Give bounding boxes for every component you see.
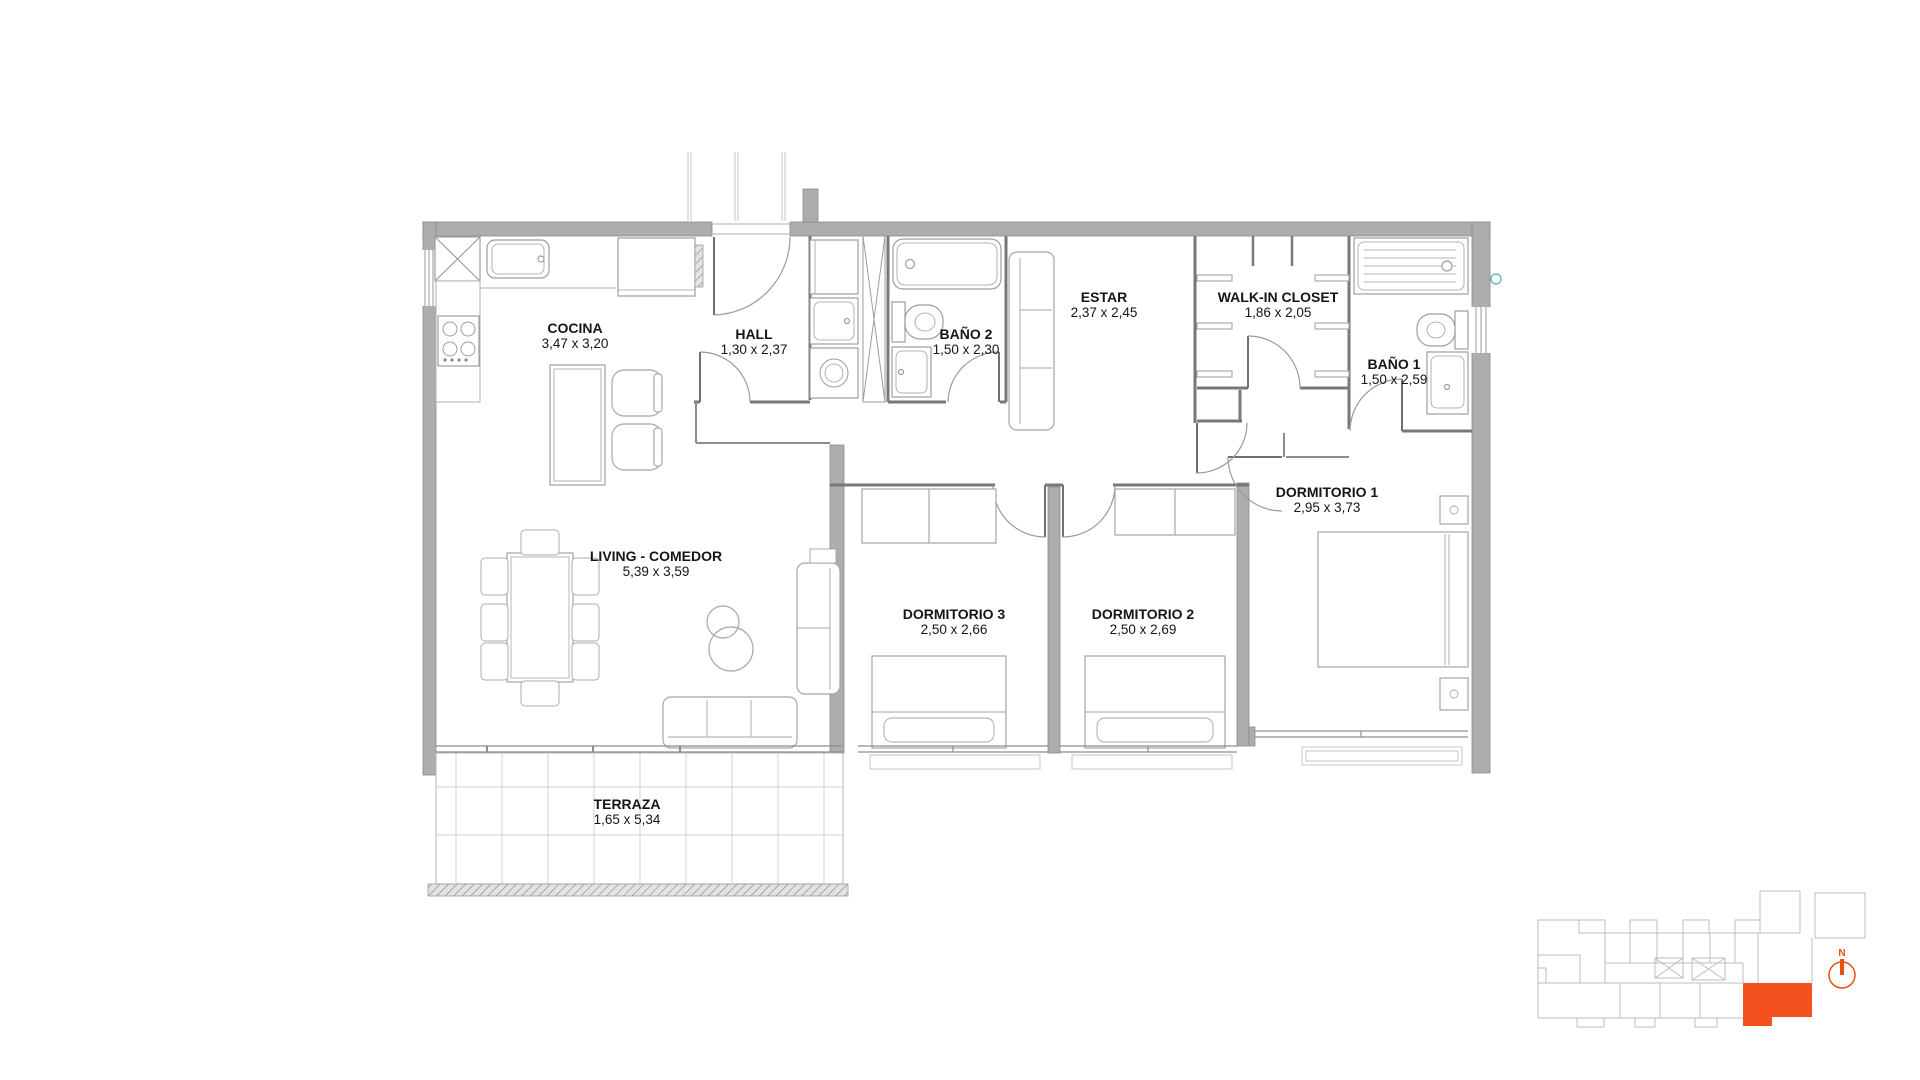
island-stools — [612, 370, 662, 470]
closet — [862, 489, 996, 543]
armchair — [797, 549, 840, 694]
room-dimensions: 2,37 x 2,45 — [1071, 305, 1138, 320]
bed — [1085, 656, 1225, 748]
room-dimensions: 3,47 x 3,20 — [542, 336, 609, 351]
sofa — [663, 697, 797, 748]
highlighted-unit — [1743, 983, 1812, 1026]
room-label-bano1: BAÑO 1 1,50 x 2,59 — [1361, 357, 1428, 387]
room-name: COCINA — [542, 321, 609, 336]
north-arrow — [1829, 959, 1855, 988]
room-label-living: LIVING - COMEDOR 5,39 x 3,59 — [590, 549, 722, 579]
room-name: DORMITORIO 1 — [1276, 485, 1378, 500]
double-bed — [1318, 532, 1468, 667]
core-shafts — [1655, 958, 1725, 980]
room-dimensions: 5,39 x 3,59 — [590, 564, 722, 579]
toilet — [1417, 311, 1468, 349]
room-label-hall: HALL 1,30 x 2,37 — [721, 327, 788, 357]
terrace-railing — [428, 884, 848, 896]
room-name: BAÑO 2 — [933, 327, 1000, 342]
room-name: BAÑO 1 — [1361, 357, 1428, 372]
kitchen-cabinet — [618, 238, 695, 296]
coffee-tables — [707, 606, 753, 671]
room-dimensions: 1,65 x 5,34 — [594, 812, 661, 827]
room-label-dorm3: DORMITORIO 3 2,50 x 2,66 — [903, 607, 1005, 637]
room-dimensions: 1,86 x 2,05 — [1218, 305, 1339, 320]
shaft-box — [435, 237, 480, 281]
bed — [872, 656, 1006, 748]
room-dimensions: 1,30 x 2,37 — [721, 342, 788, 357]
bedroom1-furniture — [1318, 496, 1468, 710]
window-ledges — [870, 747, 1462, 769]
laundry-units — [810, 240, 858, 398]
room-name: DORMITORIO 2 — [1092, 607, 1194, 622]
vanity-sink — [1427, 352, 1468, 414]
room-dimensions: 2,50 x 2,66 — [903, 622, 1005, 637]
bathtub — [893, 239, 1001, 289]
bathroom2-fixtures — [892, 239, 1001, 397]
room-label-dorm1: DORMITORIO 1 2,95 x 3,73 — [1276, 485, 1378, 515]
vanity-sink — [892, 347, 931, 397]
room-label-bano2: BAÑO 2 1,50 x 2,30 — [933, 327, 1000, 357]
duct-strip — [695, 245, 703, 287]
room-dimensions: 1,50 x 2,30 — [933, 342, 1000, 357]
kitchen-sink — [487, 240, 549, 278]
room-label-dorm2: DORMITORIO 2 2,50 x 2,69 — [1092, 607, 1194, 637]
entrance-canopy-lines — [688, 152, 785, 221]
room-name: WALK-IN CLOSET — [1218, 290, 1339, 305]
dining-table — [507, 553, 573, 682]
floorplan-page: COCINA 3,47 x 3,20 HALL 1,30 x 2,37 BAÑO… — [0, 0, 1920, 1080]
room-label-terraza: TERRAZA 1,65 x 5,34 — [594, 797, 661, 827]
room-label-cocina: COCINA 3,47 x 3,20 — [542, 321, 609, 351]
room-name: TERRAZA — [594, 797, 661, 812]
room-label-walkin: WALK-IN CLOSET 1,86 x 2,05 — [1218, 290, 1339, 320]
duct-shaft — [863, 236, 885, 402]
north-label: N — [1838, 948, 1845, 959]
room-name: HALL — [721, 327, 788, 342]
utility-marker — [1491, 274, 1501, 284]
room-dimensions: 2,50 x 2,69 — [1092, 622, 1194, 637]
bathroom1-fixtures — [1354, 238, 1468, 414]
estar-sofa — [1009, 252, 1054, 430]
room-name: ESTAR — [1071, 290, 1138, 305]
room-name: LIVING - COMEDOR — [590, 549, 722, 564]
shower — [1354, 238, 1468, 294]
closet — [1115, 489, 1235, 535]
stove — [438, 316, 479, 366]
room-label-estar: ESTAR 2,37 x 2,45 — [1071, 290, 1138, 320]
room-name: DORMITORIO 3 — [903, 607, 1005, 622]
room-dimensions: 1,50 x 2,59 — [1361, 372, 1428, 387]
kitchen-fixtures — [435, 237, 703, 485]
floor-plan-drawing — [0, 0, 1920, 1080]
room-dimensions: 2,95 x 3,73 — [1276, 500, 1378, 515]
kitchen-island — [550, 365, 605, 485]
key-plan — [1538, 891, 1865, 1027]
